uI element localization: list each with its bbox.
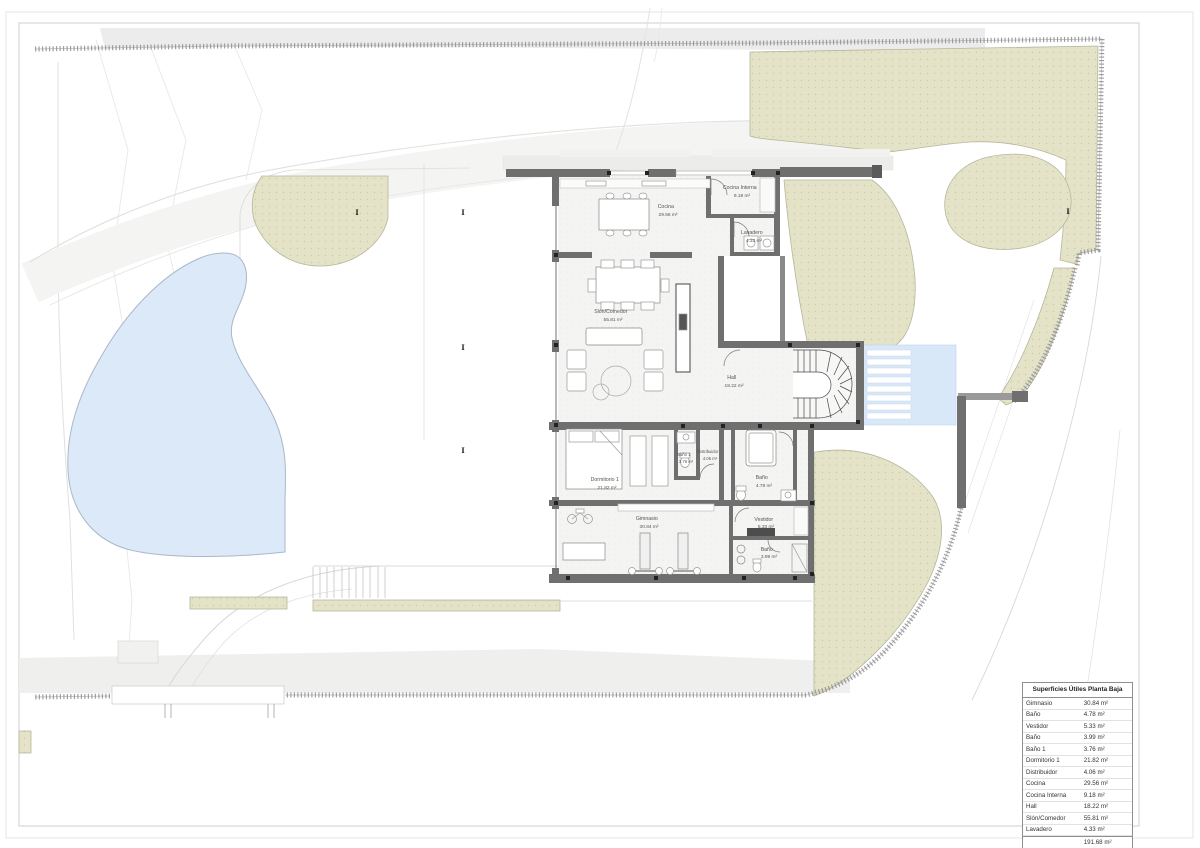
areas-table-row: Distribuidor4.06 m² [1023,767,1132,779]
areas-table-row: Slón/Comedor55.81 m² [1023,813,1132,825]
areas-table-row: Lavadero4.33 m² [1023,825,1132,837]
green-fence-strip [998,268,1075,405]
site-plan-svg: Cocina 29.56 m² Cocina Interna 9.18 m² L… [0,0,1200,848]
top-road-band [100,28,985,52]
areas-table-row: Dormitorio 121.82 m² [1023,756,1132,768]
svg-text:I: I [355,208,358,217]
pond [68,253,286,556]
svg-text:I: I [1066,207,1069,216]
svg-text:I: I [461,208,464,217]
areas-table-total: 191.68 m² [1023,836,1132,848]
areas-table-title: Superficies Útiles Planta Baja [1023,683,1132,698]
floor-plan-sheet: Cocina 29.56 m² Cocina Interna 9.18 m² L… [0,0,1200,848]
green-house-east [784,180,915,346]
areas-table-row: Cocina Interna9.18 m² [1023,790,1132,802]
areas-table-row: Cocina29.56 m² [1023,779,1132,791]
exterior-stairs [313,567,385,598]
areas-table-row: Baño3.99 m² [1023,733,1132,745]
areas-table-row: Hall18.22 m² [1023,802,1132,814]
green-kidney [945,154,1071,249]
site-gate [112,686,284,704]
svg-text:I: I [461,446,464,455]
pool [862,345,956,425]
areas-table: Superficies Útiles Planta Baja Gimnasio3… [1022,682,1133,848]
areas-table-row: Baño 13.76 m² [1023,744,1132,756]
green-south-east [814,450,942,696]
green-planter-1 [190,597,287,609]
areas-table-row: Baño4.78 m² [1023,710,1132,722]
garden-walls [957,391,1028,508]
green-sliver [19,731,31,753]
areas-table-row: Gimnasio30.84 m² [1023,698,1132,710]
green-entrance [252,176,388,266]
svg-text:I: I [461,343,464,352]
areas-table-row: Vestidor5.33 m² [1023,721,1132,733]
green-planter-2 [313,600,560,611]
